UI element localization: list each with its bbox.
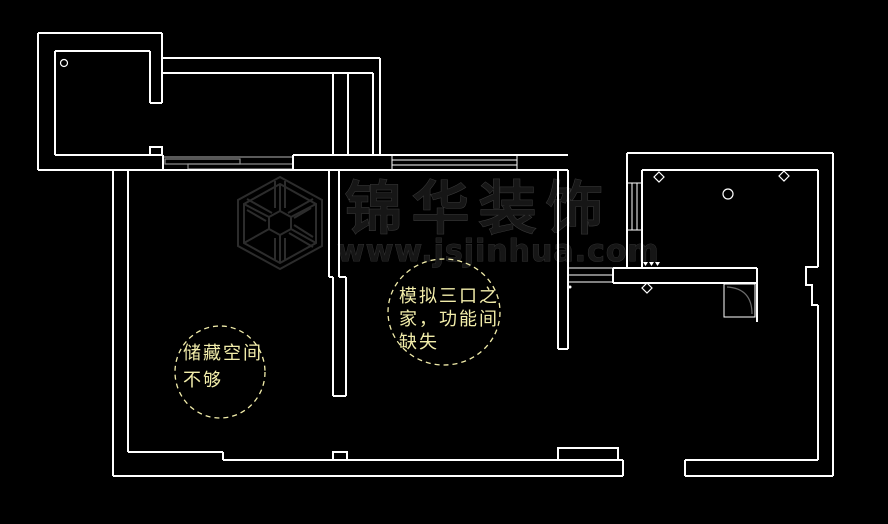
annotation-family-line3: 缺失 bbox=[399, 332, 439, 353]
diamond-marker-1 bbox=[654, 172, 664, 182]
door-right-room bbox=[724, 284, 755, 317]
door-swing-arc bbox=[727, 287, 752, 314]
fixture-circle-top-left bbox=[61, 60, 68, 67]
dot-marker bbox=[569, 286, 572, 289]
jinhua-cube-logo-icon bbox=[238, 177, 322, 269]
annotation-family-line2: 家，功能间 bbox=[399, 309, 499, 330]
window-north-symbol bbox=[392, 155, 517, 170]
watermark: 锦华装饰 www.jsjinhua.com bbox=[238, 176, 660, 269]
annotation-storage-line1: 储藏空间 bbox=[183, 343, 263, 364]
door-leaf bbox=[724, 284, 755, 317]
triangle-markers bbox=[643, 262, 660, 266]
wall-right-room-south bbox=[613, 268, 757, 322]
watermark-brand-text: 锦华装饰 bbox=[345, 176, 613, 242]
watermark-url-text: www.jsjinhua.com bbox=[337, 234, 660, 269]
fixture-circle-right-room bbox=[723, 189, 733, 199]
wall-north bbox=[38, 155, 568, 170]
wall-top-left-room bbox=[38, 33, 163, 170]
annotation-family: 模拟三口之 家，功能间 缺失 bbox=[388, 259, 500, 365]
floorplan-canvas: 锦华装饰 www.jsjinhua.com bbox=[0, 0, 888, 524]
window-right-room-symbol bbox=[627, 183, 642, 230]
sliding-window-gray bbox=[163, 157, 293, 169]
threshold-lines bbox=[568, 268, 613, 282]
annotation-family-line1: 模拟三口之 bbox=[399, 286, 499, 307]
cad-floorplan-view: 锦华装饰 www.jsjinhua.com bbox=[0, 0, 888, 524]
wall-bottom-right bbox=[685, 460, 833, 476]
wall-center-partition bbox=[329, 170, 346, 396]
annotation-storage-line2: 不够 bbox=[183, 370, 223, 391]
wall-top-band-duct bbox=[162, 58, 380, 155]
diamond-marker-3 bbox=[642, 283, 652, 293]
diamond-marker-2 bbox=[779, 171, 789, 181]
annotation-storage: 储藏空间 不够 bbox=[175, 326, 265, 418]
wall-right-room bbox=[627, 153, 833, 476]
